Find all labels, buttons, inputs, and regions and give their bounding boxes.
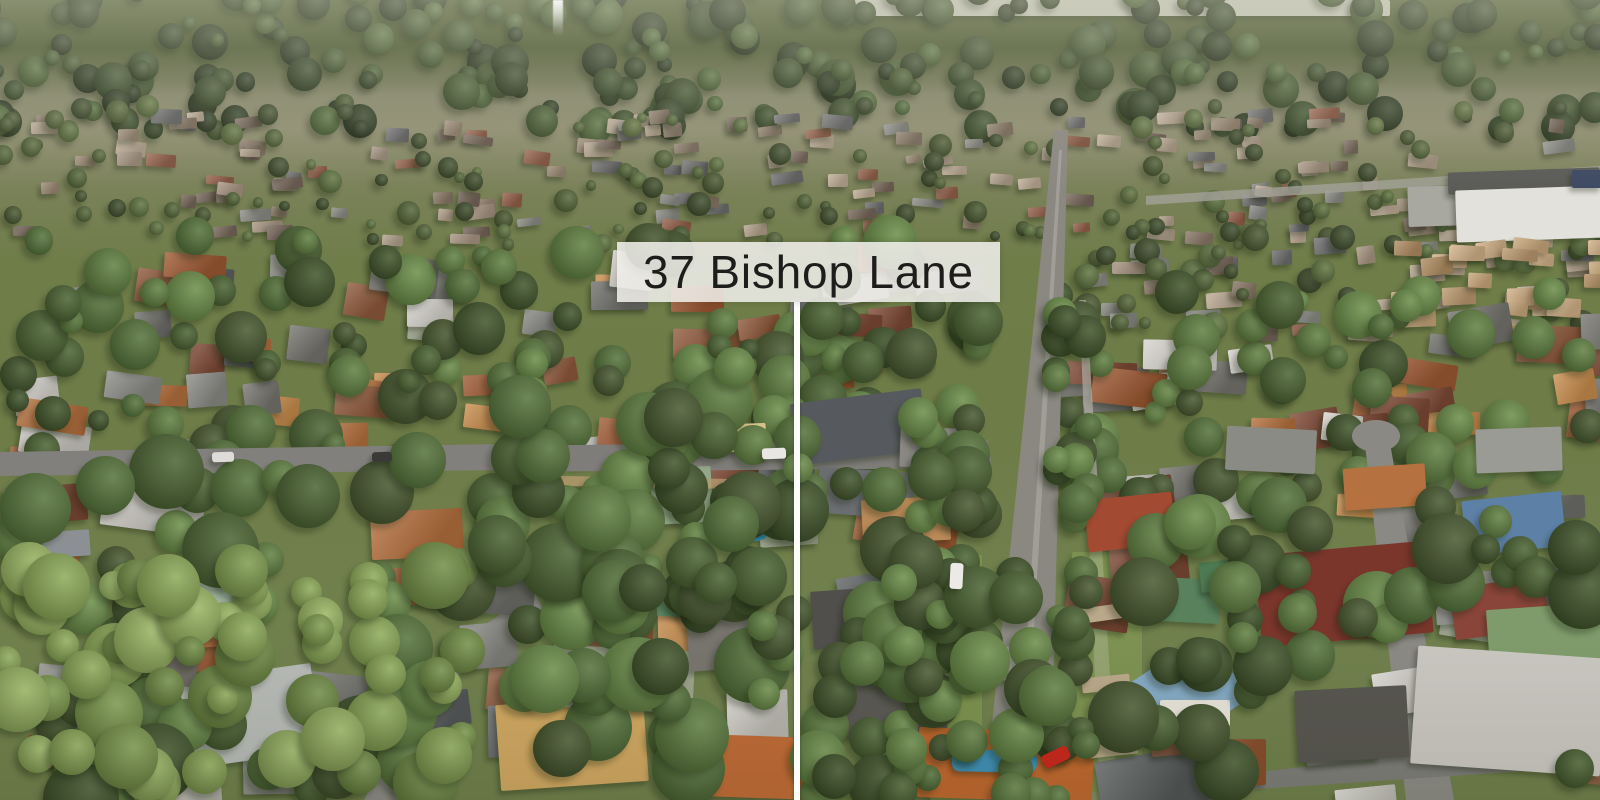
distant-roofs <box>516 216 541 227</box>
palm-cluster <box>23 553 90 620</box>
forest-band <box>401 9 431 39</box>
grey-roof-bottom-right <box>1294 685 1410 763</box>
distant-roofs <box>386 127 409 142</box>
distant-trees <box>687 192 710 215</box>
distant-trees <box>586 180 596 190</box>
distant-trees <box>763 207 776 220</box>
forest-band <box>895 100 910 115</box>
shopping-centre-navy-block <box>1572 170 1600 188</box>
palm-cluster <box>49 729 95 775</box>
near-left-trees <box>389 432 446 489</box>
top-right-tan-roofs <box>1502 247 1539 262</box>
distant-roofs <box>1157 111 1187 125</box>
distant-trees <box>136 95 158 117</box>
distant-trees <box>221 123 243 145</box>
forest-band <box>796 47 813 64</box>
upper-right-trees <box>1096 246 1116 266</box>
forest-band <box>540 0 567 27</box>
forest-band <box>1002 66 1025 89</box>
distant-roofs <box>1096 134 1121 148</box>
near-left-trees <box>511 645 579 713</box>
forest-band <box>44 50 60 66</box>
near-left-trees <box>533 720 591 778</box>
top-right-tan-roofs <box>1449 246 1485 261</box>
distant-trees <box>268 157 288 177</box>
distant-trees <box>149 221 164 236</box>
grey-roof-mid-right <box>1225 426 1317 475</box>
road-avenue-trees-west <box>898 397 938 437</box>
forest-band <box>129 0 144 2</box>
center-dense-trees <box>468 515 527 574</box>
forest-band <box>417 41 444 68</box>
forest-band <box>364 23 394 53</box>
mid-left-trees <box>165 271 215 321</box>
forest-band <box>649 41 670 62</box>
mid-left-trees <box>550 226 603 279</box>
distant-trees <box>797 194 812 209</box>
upper-right-trees <box>1126 225 1140 239</box>
forest-band <box>236 72 256 92</box>
forest-band <box>508 27 523 42</box>
forest-band <box>1206 2 1236 32</box>
bottom-center-trees <box>1019 667 1077 725</box>
forest-band <box>346 0 372 3</box>
mid-right-trees <box>1562 338 1596 372</box>
near-right-trees <box>1217 525 1251 559</box>
mid-left-trees <box>333 322 356 345</box>
distant-roofs <box>450 234 480 245</box>
mid-left-trees <box>215 311 267 363</box>
distant-roofs <box>770 170 803 186</box>
distant-roofs <box>942 166 967 176</box>
mid-right-trees <box>1352 368 1392 408</box>
bottom-center-trees <box>840 641 885 686</box>
near-right-trees <box>1278 593 1317 632</box>
upper-right-trees <box>1111 314 1128 331</box>
mid-left-trees <box>445 269 479 303</box>
forest-band <box>1030 64 1050 84</box>
distant-roofs <box>858 168 878 180</box>
forest-band <box>443 73 480 110</box>
distant-trees <box>1313 202 1329 218</box>
forest-band <box>495 62 529 96</box>
near-right-trees <box>1287 506 1333 552</box>
distant-trees <box>411 133 427 149</box>
distant-trees <box>416 224 432 240</box>
mid-right-trees <box>1184 417 1224 457</box>
property-pointer-line <box>794 302 800 800</box>
mid-left-trees <box>121 394 144 417</box>
top-right-tan-roofs <box>1584 274 1600 289</box>
road-avenue-trees-west <box>954 297 1003 346</box>
distant-trees <box>820 207 838 225</box>
distant-roofs <box>757 125 782 138</box>
road-avenue-trees-east <box>1042 364 1070 392</box>
distant-trees <box>613 224 623 234</box>
road-avenue-trees-east <box>1048 305 1081 338</box>
distant-trees <box>318 170 341 193</box>
mid-left-trees <box>84 248 132 296</box>
forest-band <box>1466 0 1497 30</box>
distant-trees <box>106 100 129 123</box>
mid-left-trees <box>411 345 441 375</box>
distant-trees <box>634 202 647 215</box>
forest-band <box>853 1 877 25</box>
mid-left-trees <box>35 396 70 431</box>
mid-right-trees <box>1324 345 1349 370</box>
bottom-center-trees <box>886 728 928 770</box>
mid-left-trees <box>293 229 318 254</box>
top-right-tan-roofs <box>1467 272 1492 288</box>
bottom-center-trees <box>884 626 924 666</box>
center-dense-trees <box>648 448 689 489</box>
distant-trees <box>1367 117 1385 135</box>
distant-roofs <box>1068 117 1086 128</box>
upper-right-trees <box>1074 264 1099 289</box>
near-left-trees <box>632 638 689 695</box>
near-right-trees <box>1227 622 1258 653</box>
palm-cluster <box>365 654 405 694</box>
distant-trees <box>692 166 705 179</box>
forest-band <box>1234 33 1259 58</box>
distant-trees <box>618 163 633 178</box>
palm-cluster <box>419 657 455 693</box>
distant-trees <box>92 149 106 163</box>
distant-roofs <box>462 134 493 147</box>
distant-roofs <box>896 131 923 145</box>
distant-roofs <box>213 225 238 238</box>
white-car-main-road <box>949 563 963 590</box>
road-avenue-trees-west <box>942 489 985 532</box>
center-dense-trees <box>489 375 552 438</box>
distant-roofs <box>502 193 523 208</box>
distant-trees <box>709 157 724 172</box>
mid-left-trees <box>0 356 37 393</box>
forest-band <box>1217 71 1238 92</box>
forest-band <box>158 23 184 49</box>
forest-band <box>624 57 646 79</box>
forest-band <box>1184 63 1205 84</box>
palm-cluster <box>302 614 334 646</box>
upper-right-trees <box>1139 317 1151 329</box>
distant-roofs <box>989 174 1013 187</box>
top-right-tan-roofs <box>1589 260 1600 275</box>
forest-band <box>359 71 377 89</box>
forest-band <box>731 23 758 50</box>
forest-band <box>773 58 803 88</box>
mid-left-roofs <box>286 325 331 364</box>
distant-trees <box>964 201 987 224</box>
near-right-trees <box>1471 534 1500 563</box>
distant-roofs <box>1018 177 1042 190</box>
forest-band <box>1519 20 1543 44</box>
distant-trees <box>1148 136 1162 150</box>
distant-trees <box>1103 209 1120 226</box>
forest-band <box>1079 55 1113 89</box>
upper-right-trees <box>1242 224 1269 251</box>
forest-band <box>1202 31 1232 61</box>
bottom-center-trees <box>812 754 856 798</box>
near-left-trees <box>0 473 71 544</box>
distant-trees <box>990 231 1000 241</box>
distant-roofs <box>965 139 984 149</box>
distant-roofs <box>852 188 875 200</box>
forest-band <box>443 19 475 51</box>
near-left-trees <box>830 467 863 500</box>
top-right-tan-roofs <box>1588 240 1600 255</box>
near-right-trees <box>1555 749 1594 788</box>
forest-band <box>321 48 346 73</box>
bottom-center-trees <box>881 564 917 600</box>
mid-right-trees <box>1167 345 1212 390</box>
distant-trees <box>21 137 41 157</box>
center-dense-trees <box>747 610 778 641</box>
forest-band <box>310 106 340 136</box>
forest-band <box>784 0 817 25</box>
distant-trees <box>76 206 92 222</box>
forest-band <box>194 76 226 108</box>
mid-left-trees <box>45 285 81 321</box>
near-left-trees <box>211 459 269 517</box>
distant-trees <box>1120 186 1138 204</box>
distant-trees <box>253 197 264 208</box>
address-text: 37 Bishop Lane <box>643 245 974 299</box>
distant-roofs <box>370 146 387 161</box>
distant-roofs <box>41 181 60 194</box>
distant-trees <box>853 149 867 163</box>
distant-trees <box>1159 173 1170 184</box>
distant-roofs <box>1188 152 1215 162</box>
near-right-trees <box>1285 630 1336 681</box>
near-right-trees <box>1164 497 1216 549</box>
upper-right-trees <box>1236 288 1249 301</box>
distant-trees <box>702 172 725 195</box>
distant-roofs <box>1344 140 1358 154</box>
distant-roofs <box>438 208 454 222</box>
palm-cluster <box>182 749 227 794</box>
palm-cluster <box>145 667 184 706</box>
distant-trees <box>934 177 946 189</box>
bottom-center-trees <box>950 631 1010 691</box>
center-dense-trees <box>593 365 625 397</box>
forest-band <box>1547 38 1566 57</box>
distant-roofs <box>1248 204 1267 220</box>
near-left-trees <box>862 467 907 512</box>
forest-band <box>697 67 721 91</box>
distant-trees <box>1208 99 1223 114</box>
forest-band <box>924 0 954 25</box>
upper-right-roofs <box>1356 245 1376 265</box>
distant-roofs <box>433 192 453 205</box>
mid-left-trees <box>25 226 53 254</box>
forest-band <box>297 0 330 20</box>
distant-roofs <box>743 223 768 238</box>
mid-left-trees <box>481 249 516 284</box>
distant-roofs <box>547 165 566 177</box>
forest-band <box>526 105 558 137</box>
distant-roofs <box>118 129 139 141</box>
white-van-side-street <box>762 448 786 460</box>
distant-trees <box>666 114 678 126</box>
dark-car-side-street <box>372 452 392 463</box>
forest-band <box>4 80 24 100</box>
forest-band <box>68 0 99 28</box>
near-right-roofs <box>1334 784 1400 800</box>
forest-band <box>352 120 369 137</box>
right-street-culdesac <box>1352 420 1400 452</box>
forest-band <box>1346 72 1379 105</box>
palm-cluster <box>175 636 205 666</box>
upper-right-trees <box>1311 259 1335 283</box>
forest-band <box>0 64 4 78</box>
road-avenue-trees-east <box>1072 731 1100 759</box>
near-left-trees <box>76 456 135 515</box>
bottom-center-trees <box>989 571 1043 625</box>
distant-roofs <box>443 120 462 137</box>
distant-roofs <box>240 149 260 158</box>
forest-band <box>1579 92 1600 123</box>
distant-trees <box>226 192 240 206</box>
distant-roofs <box>1193 129 1210 140</box>
upper-right-roofs <box>1112 262 1146 274</box>
mid-left-roofs <box>185 372 227 409</box>
palm-cluster <box>301 707 366 772</box>
forest-band <box>1528 45 1543 60</box>
distant-roofs <box>1065 193 1094 207</box>
distant-trees <box>1024 141 1038 155</box>
distant-trees <box>1297 197 1312 212</box>
distant-roofs <box>674 142 699 155</box>
distant-roofs <box>331 207 349 219</box>
palm-cluster <box>94 724 158 788</box>
forest-band <box>1307 63 1326 82</box>
forest-band <box>593 68 623 98</box>
mid-left-trees <box>369 245 402 278</box>
distant-roofs <box>872 182 894 193</box>
top-right-tan-roofs <box>1442 286 1477 306</box>
address-label: 37 Bishop Lane <box>617 242 1000 302</box>
near-right-trees <box>1176 637 1222 683</box>
distant-roofs <box>1309 107 1341 119</box>
distant-roofs <box>1331 161 1349 171</box>
distant-trees <box>129 197 148 216</box>
distant-trees <box>1242 124 1255 137</box>
palm-cluster <box>215 544 268 597</box>
shopping-centre-white-roof <box>1455 185 1600 242</box>
distant-trees <box>316 198 328 210</box>
bottom-center-trees <box>879 772 916 800</box>
distant-roofs <box>847 208 876 220</box>
distant-trees <box>573 122 584 133</box>
center-dense-trees <box>703 496 760 553</box>
forest-band <box>707 96 723 112</box>
near-right-trees <box>1548 520 1600 575</box>
distant-roofs <box>822 113 854 130</box>
palm-cluster <box>207 683 238 714</box>
distant-trees <box>164 202 180 218</box>
mid-left-trees <box>88 410 108 430</box>
distant-trees <box>554 189 577 212</box>
distant-roofs <box>791 151 809 165</box>
distant-trees <box>769 143 791 165</box>
distant-trees <box>454 172 465 183</box>
mid-left-trees <box>553 302 582 331</box>
center-dense-trees <box>714 347 755 388</box>
distant-trees <box>279 201 289 211</box>
distant-roofs <box>1307 118 1331 128</box>
mid-left-trees <box>284 257 335 308</box>
distant-trees <box>375 174 388 187</box>
distant-roofs <box>1297 161 1328 174</box>
forest-band <box>1497 50 1512 65</box>
mid-right-trees <box>1155 270 1199 314</box>
forest-band <box>1584 24 1600 49</box>
distant-trees <box>4 206 22 224</box>
distant-trees <box>306 159 316 169</box>
suburb-scene <box>0 0 1600 800</box>
road-avenue-trees-east <box>1054 606 1090 642</box>
center-dense-trees <box>729 547 788 606</box>
center-dense-trees <box>644 388 703 447</box>
center-dense-trees <box>619 564 667 612</box>
distant-trees <box>1454 101 1474 121</box>
mid-left-trees <box>255 358 278 381</box>
distant-roofs <box>1073 222 1091 232</box>
distant-trees <box>397 201 420 224</box>
mid-left-trees <box>800 297 844 341</box>
distant-roofs <box>1542 138 1575 155</box>
road-avenue-trees-east <box>1069 575 1103 609</box>
distant-trees <box>258 104 279 125</box>
mid-left-trees <box>842 341 884 383</box>
forest-band <box>889 68 913 92</box>
distant-roofs <box>659 194 680 206</box>
mid-right-trees <box>1368 314 1394 340</box>
upper-right-trees <box>1330 225 1355 250</box>
distant-trees <box>108 199 126 217</box>
distant-trees <box>1143 156 1163 176</box>
distant-trees <box>1494 122 1515 143</box>
road-avenue-trees-east <box>1058 483 1098 523</box>
distant-trees <box>1411 140 1430 159</box>
palm-cluster <box>137 554 200 617</box>
distant-roofs <box>645 124 662 136</box>
distant-trees <box>415 151 432 168</box>
distant-trees <box>67 168 88 189</box>
upper-right-trees <box>1224 264 1239 279</box>
palm-cluster <box>416 727 473 784</box>
distant-trees <box>0 145 13 165</box>
aerial-photo: 37 Bishop Lane <box>0 0 1600 800</box>
distant-trees <box>242 231 253 242</box>
distant-roofs <box>523 149 550 166</box>
forest-band <box>1050 98 1068 116</box>
distant-roofs <box>272 176 304 191</box>
mid-right-trees <box>1447 309 1496 358</box>
distant-trees <box>622 118 641 137</box>
distant-trees <box>654 150 672 168</box>
mid-right-trees <box>1570 409 1600 443</box>
forest-band <box>1427 40 1448 61</box>
center-dense-trees <box>565 485 631 551</box>
distant-trees <box>265 129 283 147</box>
distant-trees <box>497 224 512 239</box>
forest-band <box>287 57 322 92</box>
forest-band <box>1357 20 1394 57</box>
near-right-trees <box>1209 561 1261 613</box>
mid-right-trees <box>1256 281 1304 329</box>
distant-trees <box>1131 116 1153 138</box>
